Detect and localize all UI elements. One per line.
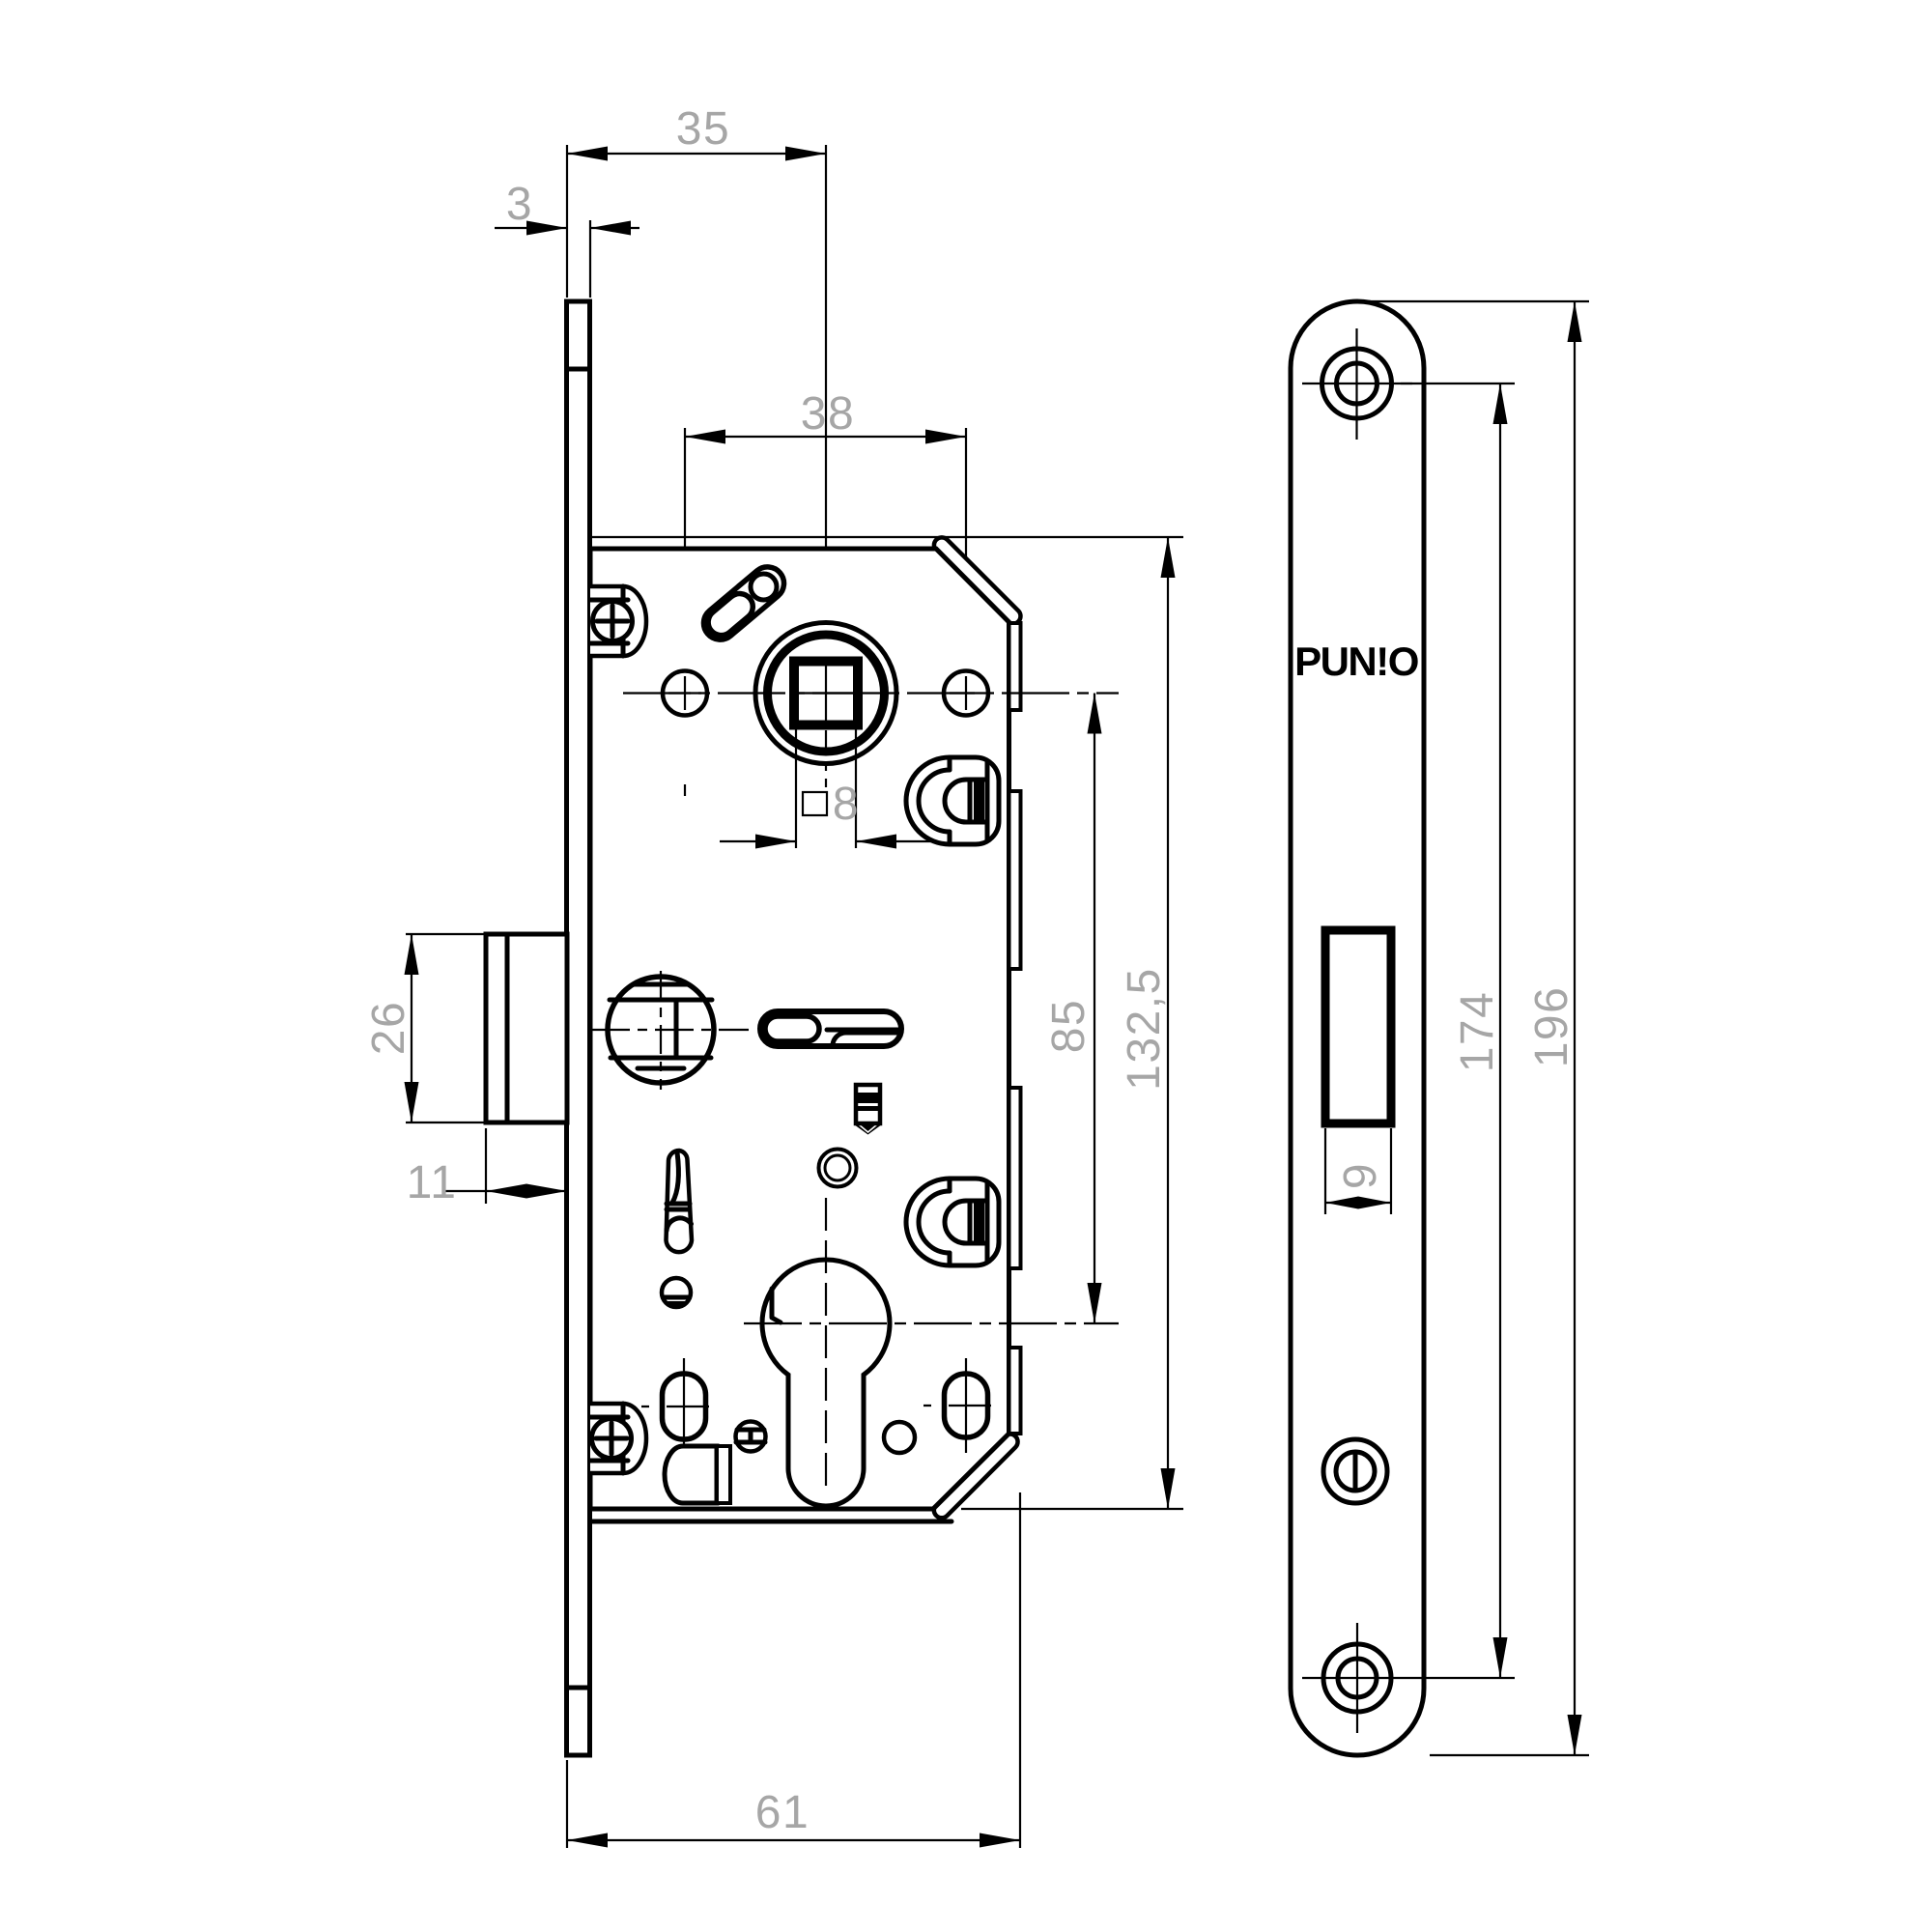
svg-text:PUN!O: PUN!O [1294,639,1418,684]
svg-text:8: 8 [833,779,860,830]
svg-text:11: 11 [407,1157,458,1208]
svg-text:174: 174 [1452,991,1503,1073]
svg-text:3: 3 [506,179,533,230]
svg-text:196: 196 [1526,986,1577,1068]
svg-text:26: 26 [363,1001,414,1055]
svg-text:85: 85 [1043,999,1094,1053]
svg-text:35: 35 [676,103,730,155]
svg-text:61: 61 [755,1787,810,1838]
svg-text:38: 38 [801,388,855,440]
svg-text:9: 9 [1335,1162,1386,1189]
svg-text:132,5: 132,5 [1119,967,1170,1091]
